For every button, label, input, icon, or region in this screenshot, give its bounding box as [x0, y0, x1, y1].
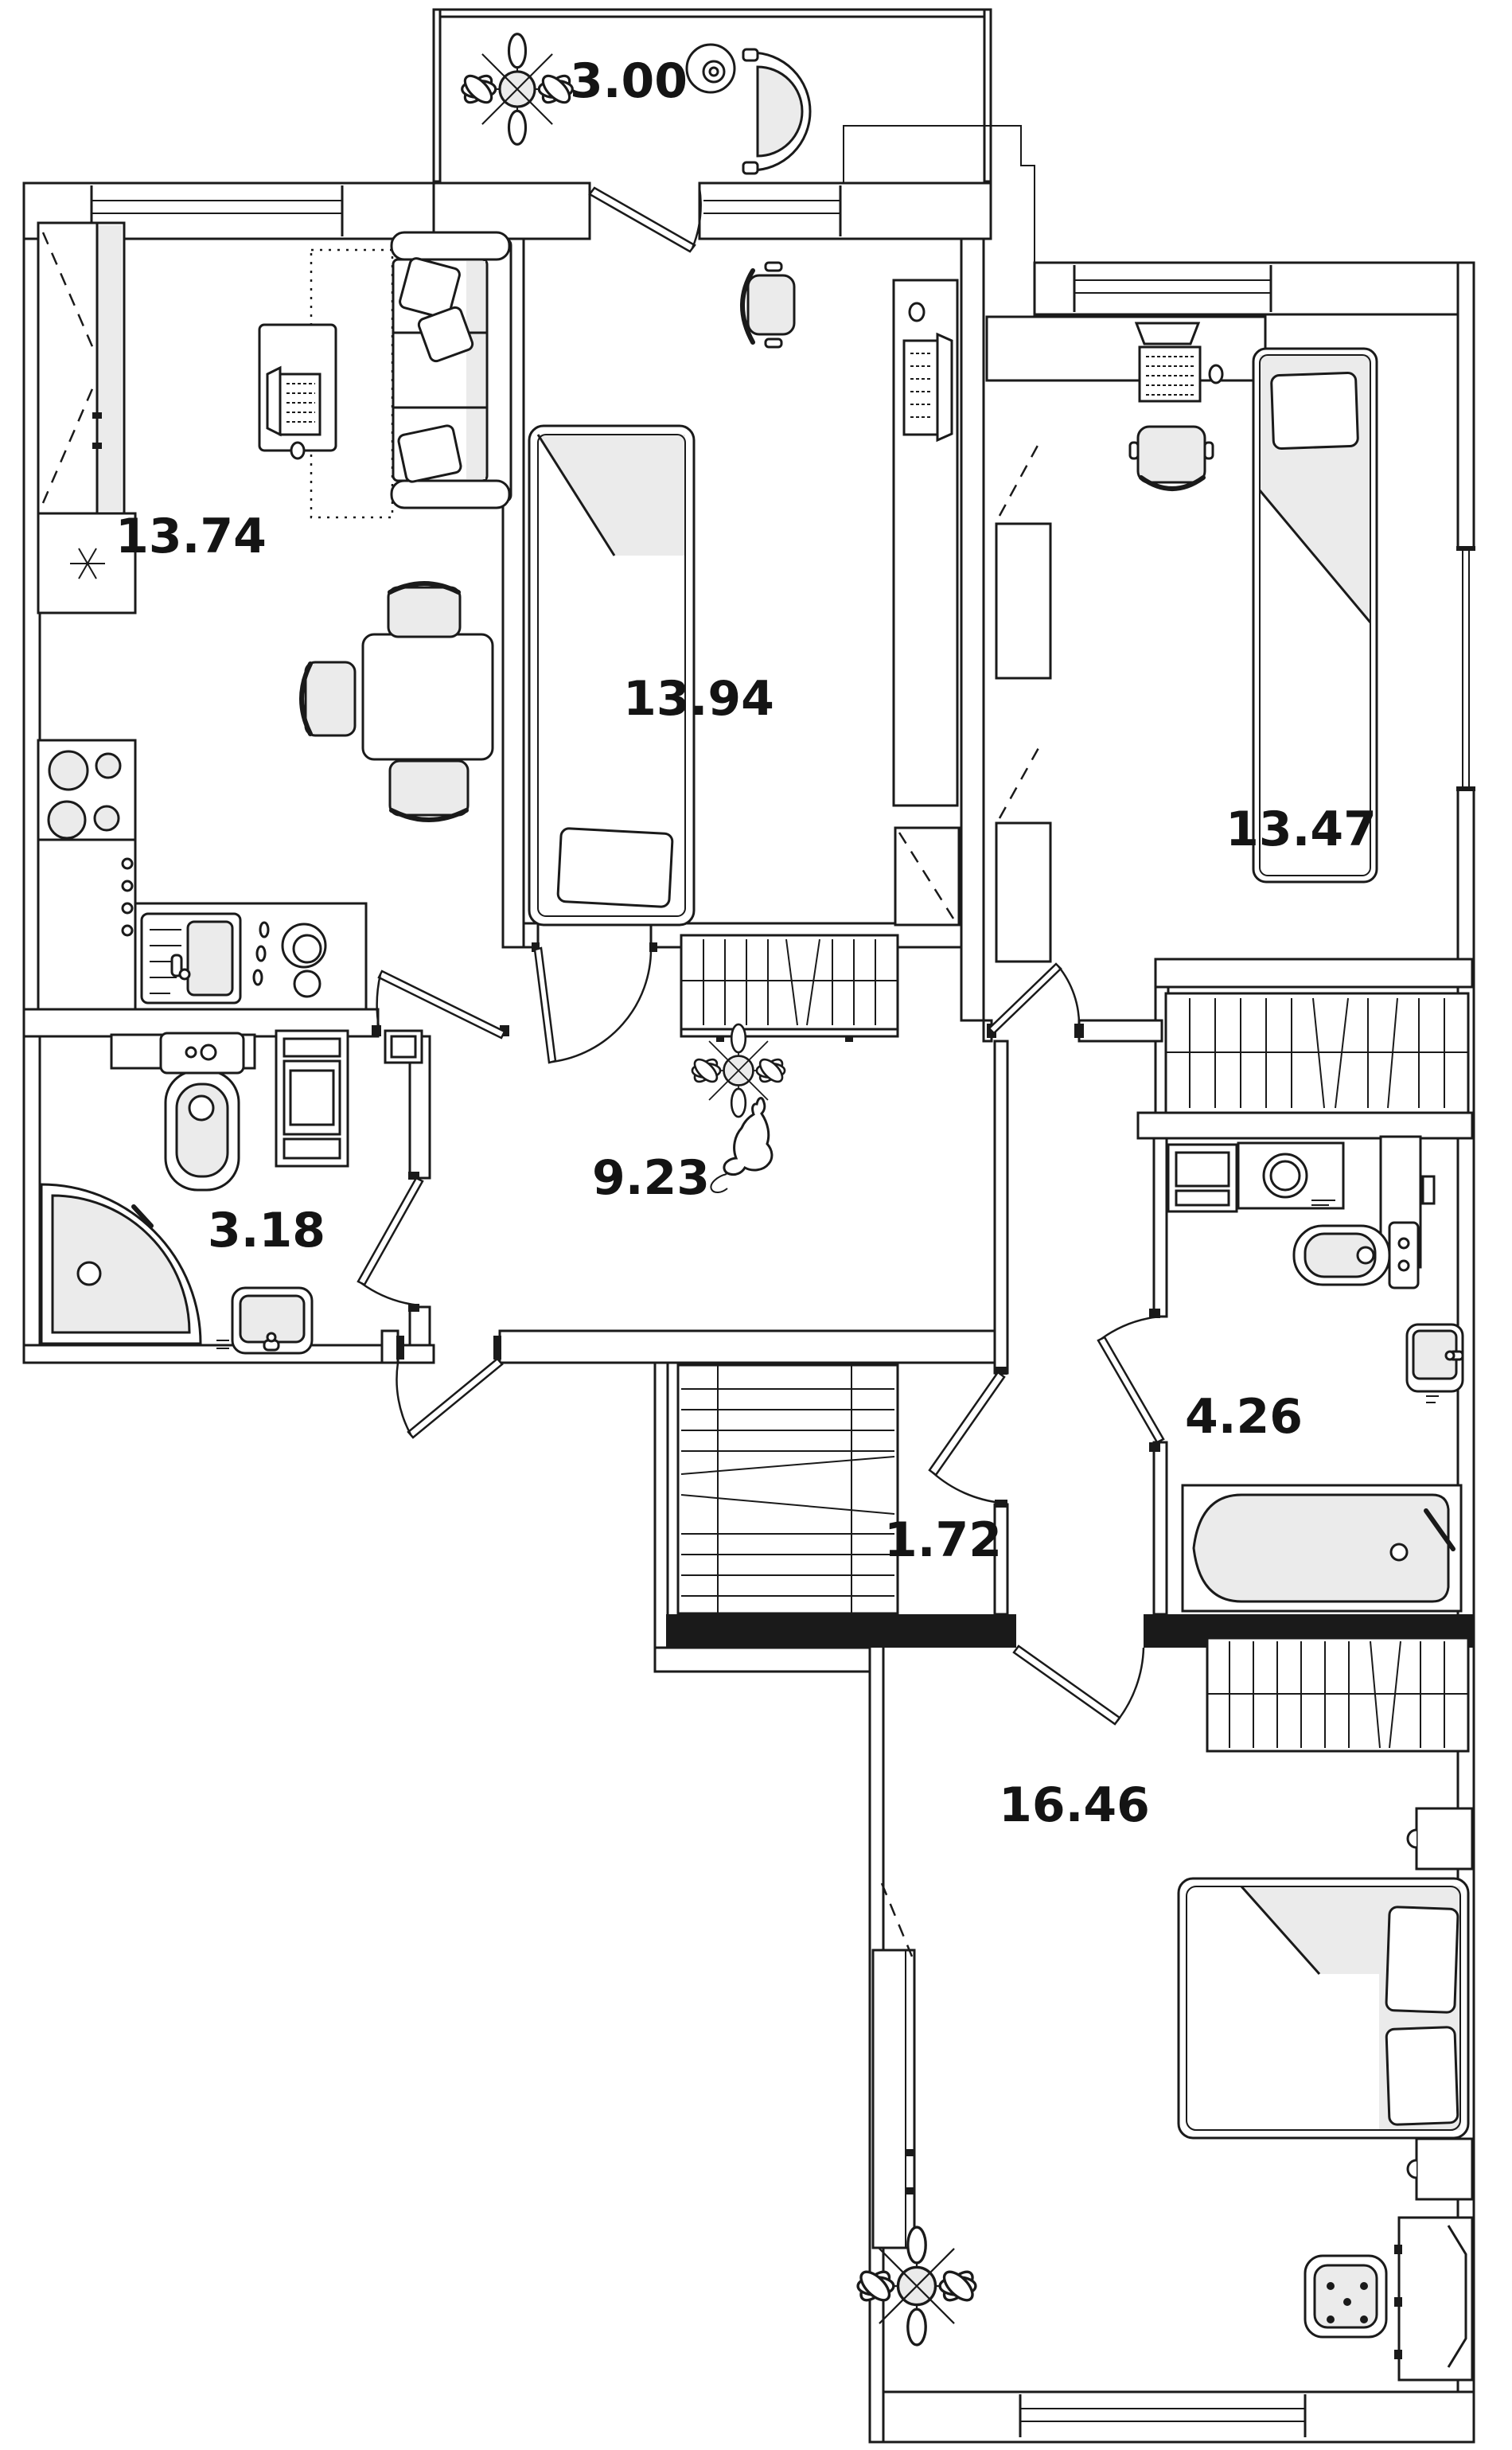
tall-cabinet-icon	[38, 223, 124, 513]
cabinet-icon	[276, 1031, 348, 1166]
room-label-hallway: 9.23	[592, 1150, 710, 1206]
coffee-table-icon	[259, 250, 392, 517]
washbasin-icon	[1407, 1324, 1463, 1403]
door-closet	[929, 1367, 1007, 1508]
toilet-icon	[161, 1033, 244, 1190]
room-label-closet: 1.72	[884, 1512, 1002, 1568]
wall-bedroom-bottom	[870, 2392, 1474, 2442]
desk-icon	[987, 317, 1265, 401]
shower-icon	[41, 1184, 201, 1344]
dining-table-icon	[363, 634, 493, 759]
floor-plan-page: 3.00 13.74 13.94 13.47 3.18 9.23 4.26 1.…	[0, 0, 1512, 2450]
room-closet	[678, 1365, 898, 1613]
built-in-wardrobe-icon	[1166, 993, 1468, 1113]
washbasin-icon	[216, 1288, 312, 1353]
closet-wardrobe-icon	[678, 1365, 898, 1613]
room-hallway	[681, 935, 898, 1192]
double-bed-icon	[1179, 1878, 1468, 2138]
stove-icon	[38, 740, 135, 840]
duct-icon	[385, 1031, 422, 1063]
room-label-balcony: 3.00	[570, 53, 688, 109]
washing-machine-icon	[1238, 1143, 1343, 1208]
desk-chair-icon	[742, 263, 794, 347]
room-shower	[41, 1031, 422, 1353]
cabinet-icon	[1168, 1145, 1237, 1211]
wall-bedroom-top	[666, 1614, 1016, 1648]
wall-room3-top	[1035, 263, 1472, 314]
room-master-bedroom	[856, 1638, 1472, 2380]
built-in-wardrobe-icon	[1207, 1638, 1468, 1751]
toilet-icon	[1294, 1223, 1418, 1288]
armchair-icon	[743, 49, 810, 174]
door-bedroom-3	[987, 964, 1084, 1038]
round-table-icon	[687, 45, 735, 92]
pouf-icon	[1305, 2256, 1386, 2337]
door-kitchen	[372, 971, 509, 1038]
hall-wardrobe-icon	[681, 935, 898, 1042]
door-master-bedroom	[1014, 1646, 1144, 1724]
room-label-bedroom-2: 13.94	[623, 671, 774, 727]
door-shower-room	[358, 1172, 423, 1312]
desk-chair-icon	[1130, 427, 1213, 489]
room-label-bathroom: 4.26	[1185, 1389, 1303, 1445]
room-label-master-bedroom: 16.46	[999, 1777, 1150, 1833]
desk-icon	[894, 280, 957, 806]
wall-room2-room3	[961, 239, 984, 1020]
room-label-bedroom-3: 13.47	[1226, 802, 1377, 857]
window-room3-right	[1456, 546, 1475, 791]
sofa-icon	[392, 232, 511, 508]
wall-entrance	[500, 1331, 995, 1363]
room-label-shower-room: 3.18	[208, 1203, 325, 1258]
sink-icon	[142, 914, 240, 1003]
wardrobe-icon	[895, 828, 959, 925]
room-bedroom-2	[529, 263, 959, 925]
bathtub-icon	[1183, 1485, 1461, 1611]
room-bathroom	[1168, 1137, 1463, 1611]
tv-stand-icon	[1394, 2218, 1472, 2380]
floor-plan: 3.00 13.74 13.94 13.47 3.18 9.23 4.26 1.…	[0, 0, 1512, 2450]
door-bedroom-2	[532, 942, 657, 1063]
cabinet-icon	[996, 443, 1050, 962]
door-balcony	[590, 188, 701, 252]
room-bedroom-3	[987, 317, 1468, 1113]
door-bathroom	[1098, 1309, 1163, 1452]
room-kitchen-living	[38, 223, 511, 1009]
room-label-kitchen-living: 13.74	[115, 509, 267, 564]
wall-bathroom-top	[1138, 1113, 1472, 1138]
